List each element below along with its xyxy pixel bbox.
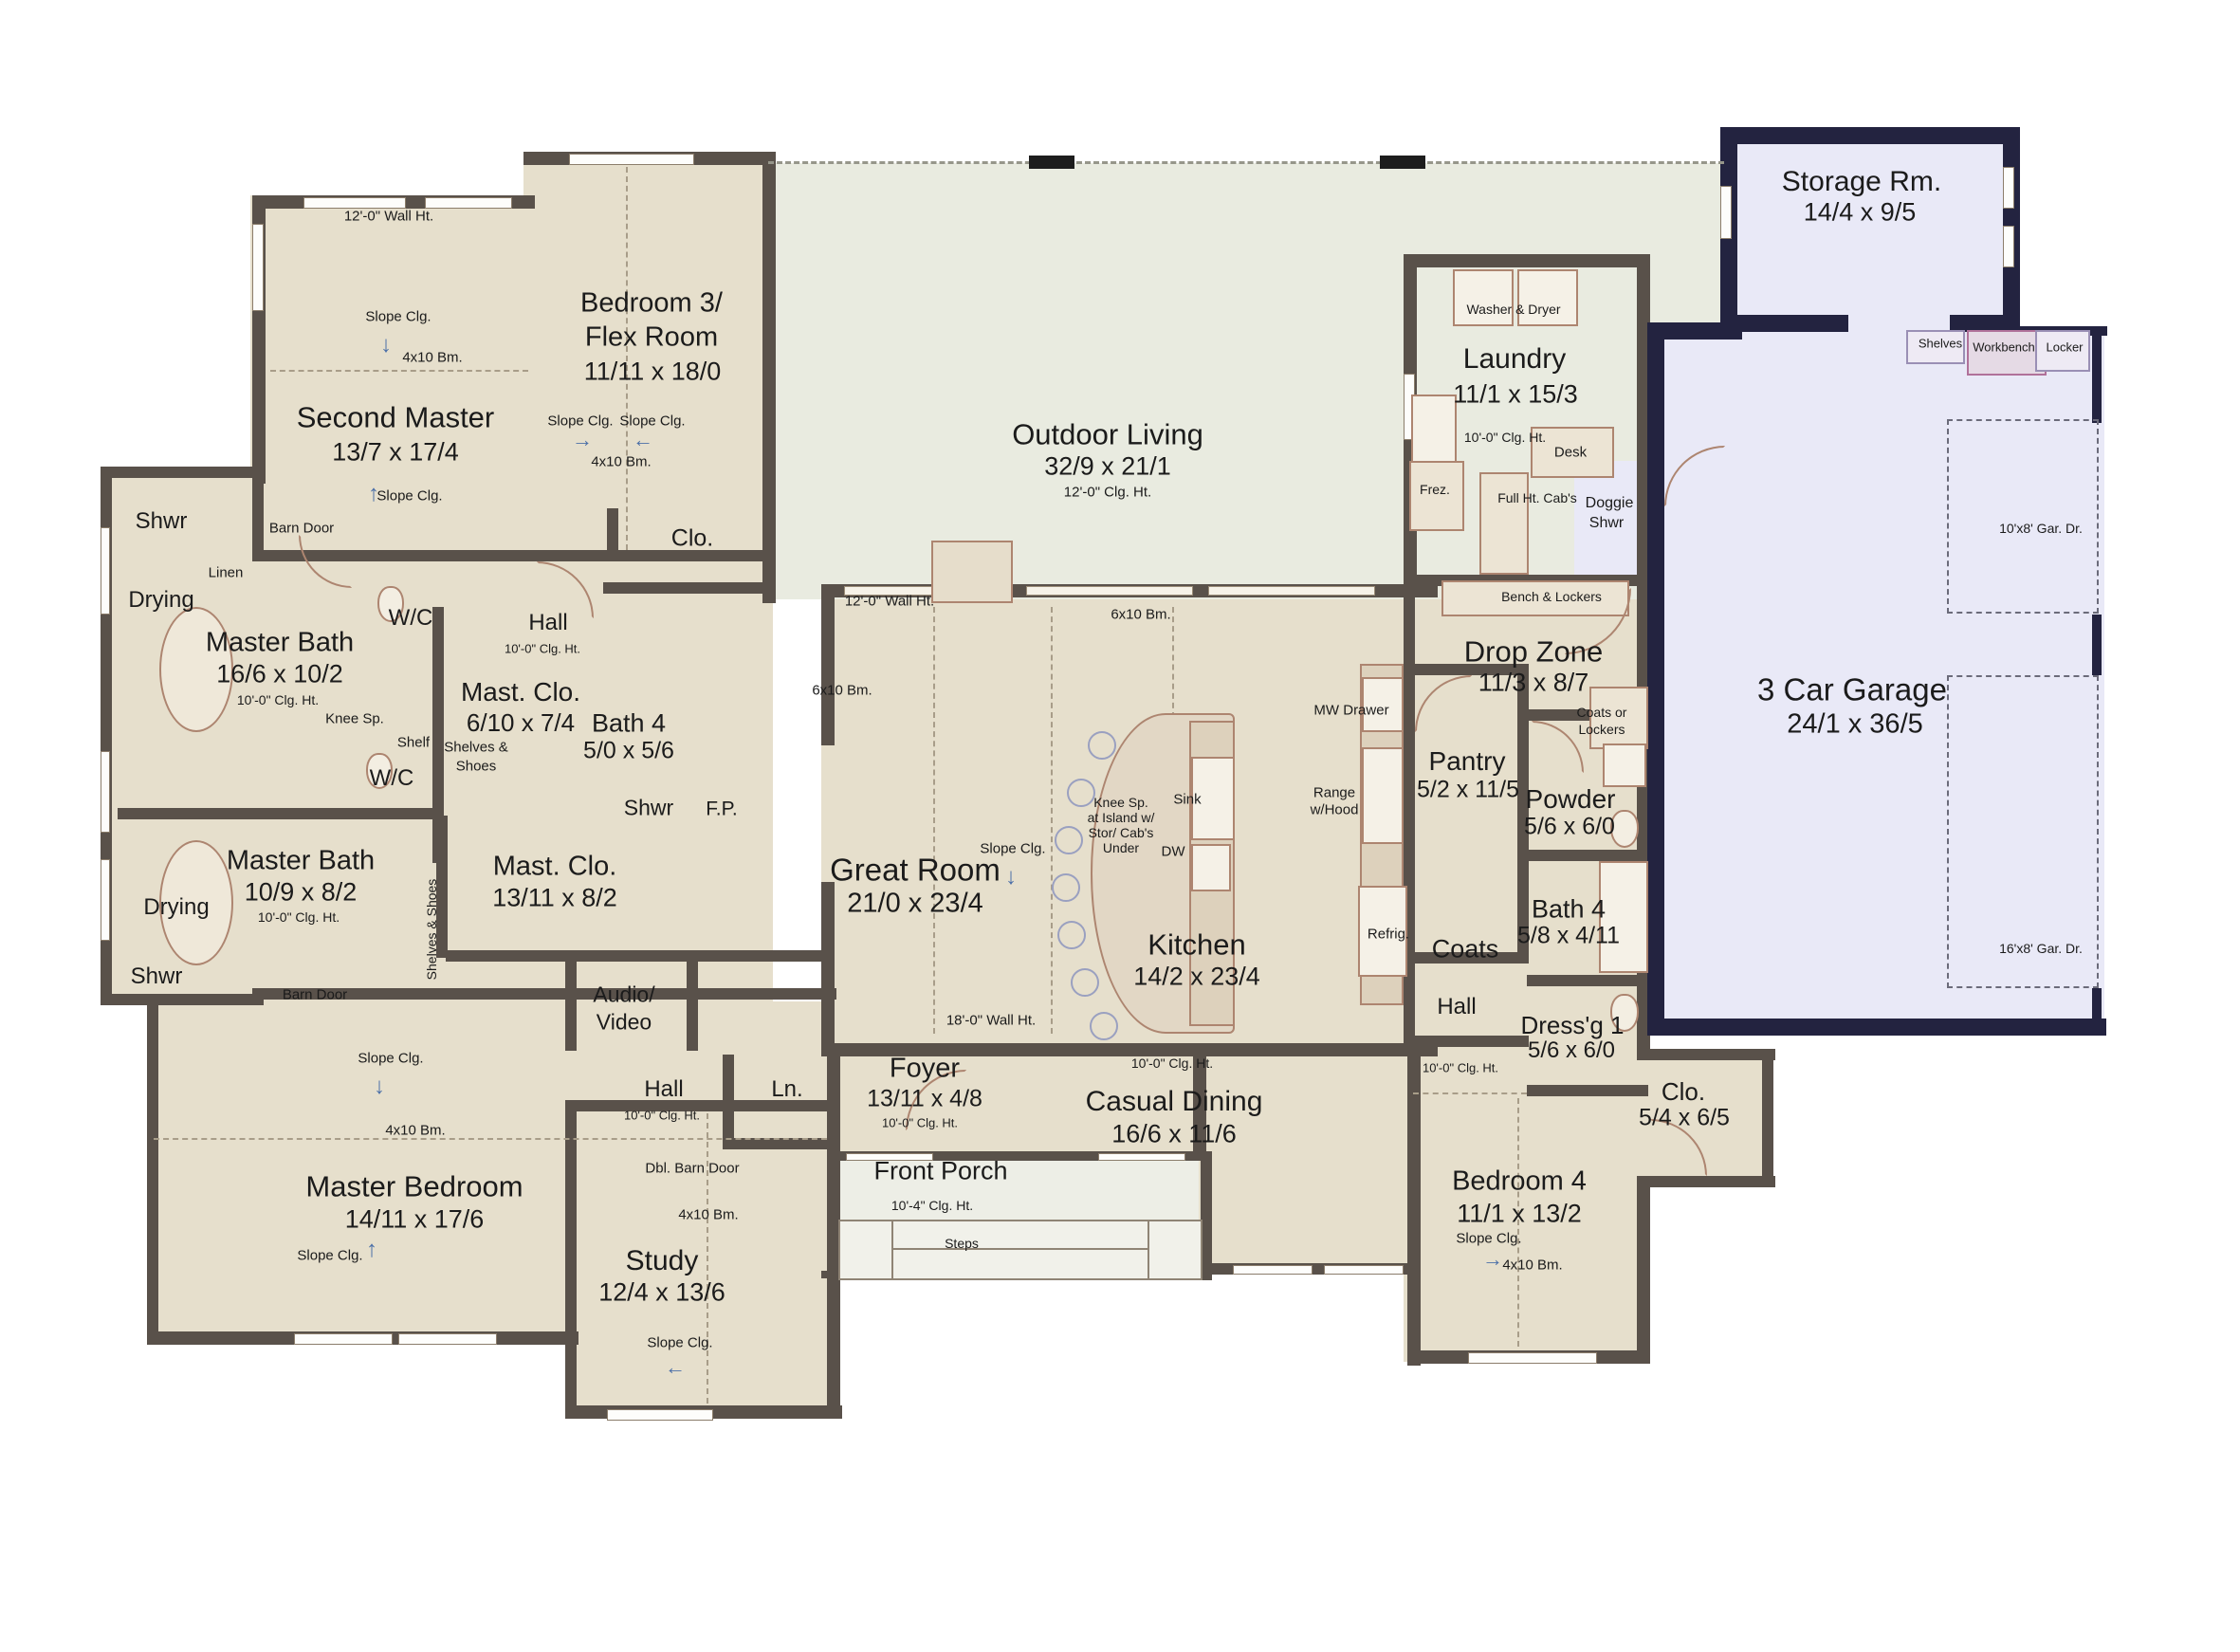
- label-locker: Locker: [2046, 341, 2083, 354]
- bar-stool: [1052, 873, 1080, 902]
- window: [303, 197, 406, 209]
- wall-segment: [1637, 1176, 1650, 1364]
- window: [1098, 1153, 1185, 1161]
- garage-wall-segment: [1647, 322, 1742, 340]
- label-master-bath-2-dim: 10/9 x 8/2: [245, 880, 358, 906]
- label-sm-slope-clg-top: Slope Clg.: [365, 310, 431, 324]
- label-drop-zone: Drop Zone: [1464, 637, 1603, 667]
- label-sm-wall-ht: 12'-0" Wall Ht.: [344, 210, 433, 224]
- label-kitchen-dim: 14/2 x 23/4: [1133, 964, 1260, 990]
- sliding-door: [1026, 586, 1193, 596]
- label-bench-lockers: Bench & Lockers: [1501, 590, 1602, 603]
- wall-segment: [106, 994, 264, 1005]
- label-foyer-clg: 10'-0" Clg. Ht.: [882, 1117, 958, 1129]
- steps-post: [1148, 1220, 1203, 1280]
- label-shelves-shoes-1b: Shoes: [456, 760, 497, 774]
- label-clo-4: Clo.: [1662, 1079, 1705, 1104]
- label-washer-dryer: Washer & Dryer: [1466, 303, 1560, 316]
- garage-wall-segment: [1647, 1019, 2106, 1036]
- label-b3-arrow-left: →: [572, 430, 593, 450]
- label-mw-drawer: MW Drawer: [1313, 704, 1388, 718]
- window: [101, 859, 110, 941]
- label-frez: Frez.: [1420, 483, 1450, 496]
- column-marker: [1380, 156, 1425, 169]
- label-wc-1: W/C: [389, 607, 433, 630]
- label-full-ht-cabs: Full Ht. Cab's: [1497, 491, 1577, 505]
- label-gr-beam-1: 6x10 Bm.: [812, 684, 872, 698]
- room-storage: [1728, 133, 2018, 330]
- label-foyer-dim: 13/11 x 4/8: [867, 1088, 982, 1111]
- label-great-room-dim: 21/0 x 23/4: [847, 890, 983, 918]
- label-bedroom3-name-2: Flex Room: [585, 324, 718, 352]
- label-gr-beam-2: 6x10 Bm.: [1111, 608, 1170, 622]
- label-bedroom3-dim: 11/11 x 18/0: [584, 359, 722, 385]
- label-barn-door-1: Barn Door: [269, 522, 334, 536]
- label-gr-wall-ht: 12'-0" Wall Ht.: [845, 595, 934, 609]
- label-laundry-clg: 10'-0" Clg. Ht.: [1464, 431, 1546, 444]
- label-sm-beam: 4x10 Bm.: [402, 351, 462, 365]
- label-outdoor-living-dim: 32/9 x 21/1: [1044, 454, 1171, 480]
- full-height-cabinets: [1479, 472, 1529, 575]
- beam-dashed-line: [270, 370, 528, 374]
- label-garage-dim: 24/1 x 36/5: [1787, 711, 1923, 739]
- label-second-master-dim: 13/7 x 17/4: [332, 440, 459, 466]
- wall-segment: [106, 467, 264, 478]
- label-mast-clo-2: Mast. Clo.: [493, 854, 617, 881]
- window: [2003, 226, 2014, 267]
- window: [1720, 186, 1732, 239]
- label-doggie-shwr-1: Doggie: [1586, 496, 1634, 511]
- label-coats-or-lockers-2: Lockers: [1578, 723, 1625, 736]
- window: [1324, 1265, 1404, 1275]
- label-dressg-1: Dress'g 1: [1520, 1013, 1624, 1037]
- label-b4-slope: Slope Clg.: [1456, 1232, 1521, 1246]
- wall-segment: [687, 956, 698, 1051]
- window: [425, 197, 512, 209]
- label-shelves-garage: Shelves: [1919, 338, 1962, 350]
- wall-segment: [821, 584, 835, 745]
- label-hall-right-clg: 10'-0" Clg. Ht.: [1423, 1062, 1498, 1074]
- label-master-bath-2: Master Bath: [227, 848, 375, 875]
- window: [569, 154, 694, 165]
- label-powder-dim: 5/6 x 6/0: [1524, 816, 1615, 839]
- window: [252, 224, 264, 311]
- bath4-tub: [1599, 861, 1648, 973]
- bar-stool: [1090, 1012, 1118, 1040]
- label-hall-left: Hall: [528, 612, 567, 634]
- label-mb-beam: 4x10 Bm.: [385, 1124, 445, 1138]
- label-desk: Desk: [1554, 446, 1587, 460]
- label-casual-dining: Casual Dining: [1086, 1088, 1263, 1116]
- roofline-dashed: [768, 161, 1724, 167]
- fireplace-box: [931, 541, 1013, 603]
- label-audio-video-2: Video: [597, 1012, 652, 1034]
- bar-stool: [1067, 779, 1095, 807]
- wall-segment: [1637, 1176, 1775, 1187]
- label-laundry: Laundry: [1463, 345, 1566, 374]
- label-storage-rm-dim: 14/4 x 9/5: [1804, 200, 1917, 226]
- label-doggie-shwr-2: Shwr: [1589, 516, 1624, 531]
- wall-segment: [762, 152, 776, 603]
- label-coats-or-lockers-1: Coats or: [1577, 706, 1627, 719]
- wall-segment: [603, 582, 774, 594]
- label-outdoor-living: Outdoor Living: [1012, 420, 1203, 450]
- label-linen: Linen: [209, 566, 244, 580]
- label-outdoor-living-clg: 12'-0" Clg. Ht.: [1064, 486, 1151, 500]
- label-mast-clo-1-dim: 6/10 x 7/4: [467, 710, 575, 735]
- beam-dashed-line: [1051, 607, 1055, 1034]
- wall-segment: [565, 1100, 577, 1413]
- label-mast-clo-1: Mast. Clo.: [461, 679, 580, 706]
- label-b3-closet: Clo.: [671, 527, 713, 551]
- window: [607, 1409, 713, 1421]
- beam-dashed-line: [707, 1113, 710, 1404]
- window: [398, 1333, 497, 1345]
- label-b3-slope-left: Slope Clg.: [547, 414, 613, 429]
- label-dressg-1-dim: 5/6 x 6/0: [1528, 1039, 1615, 1062]
- label-pantry-dim: 5/2 x 11/5: [1417, 779, 1519, 802]
- wall-segment: [565, 956, 577, 1051]
- label-mb-slope-bottom: Slope Clg.: [297, 1249, 362, 1263]
- room-casual-dining: [1199, 1049, 1426, 1269]
- label-second-master: Second Master: [297, 403, 495, 432]
- steps-line: [893, 1248, 1148, 1250]
- label-porch-clg: 10'-4" Clg. Ht.: [891, 1199, 973, 1212]
- garage-wall-segment: [1720, 127, 2020, 144]
- garage-wall-segment: [1647, 322, 1664, 1036]
- wall-segment: [1407, 1049, 1421, 1366]
- label-b3-arrow-right: ←: [633, 430, 653, 450]
- beam-dashed-line: [1413, 1092, 1527, 1096]
- label-b4-slope-arrow: →: [1482, 1249, 1503, 1270]
- label-casual-dining-dim: 16/6 x 11/6: [1111, 1122, 1237, 1147]
- label-mb-slope-arrow-bottom: ↑: [366, 1239, 377, 1261]
- label-knee-sp: Knee Sp.: [325, 712, 384, 726]
- label-wc-2: W/C: [370, 767, 414, 790]
- label-laundry-dim: 11/1 x 15/3: [1453, 382, 1578, 408]
- label-study-dim: 12/4 x 13/6: [598, 1280, 725, 1306]
- wall-segment: [607, 508, 618, 561]
- label-range-2: w/Hood: [1311, 803, 1359, 817]
- wall-segment: [252, 467, 264, 561]
- label-study-slope-arrow: ←: [665, 1357, 686, 1378]
- label-garage-door-1: 10'x8' Gar. Dr.: [1999, 522, 2083, 535]
- label-master-bath-2-clg: 10'-0" Clg. Ht.: [258, 910, 340, 924]
- beam-dashed-line: [933, 607, 937, 1034]
- label-dbl-barn-door: Dbl. Barn Door: [645, 1162, 739, 1176]
- wall-segment: [723, 1055, 734, 1146]
- label-mb-slope-arrow-top: ↓: [374, 1075, 385, 1098]
- label-bedroom3-name-1: Bedroom 3/: [580, 290, 723, 318]
- label-master-bath-1-dim: 16/6 x 10/2: [216, 662, 343, 688]
- dishwasher: [1191, 844, 1231, 891]
- label-bath4-right: Bath 4: [1532, 897, 1606, 923]
- label-shelves-shoes-2: Shelves & Shoes: [425, 879, 438, 981]
- label-workbench: Workbench: [1973, 341, 2035, 354]
- label-island-note-3: Stor/ Cab's: [1089, 826, 1154, 839]
- wall-segment: [1527, 975, 1648, 986]
- label-front-porch: Front Porch: [873, 1159, 1007, 1184]
- label-foyer: Foyer: [890, 1055, 960, 1083]
- label-mb-slope-top: Slope Clg.: [358, 1052, 423, 1066]
- label-sink: Sink: [1173, 793, 1201, 807]
- range-with-hood: [1362, 747, 1404, 844]
- label-b3-slope-right: Slope Clg.: [619, 414, 685, 429]
- label-bedroom-4: Bedroom 4: [1452, 1168, 1587, 1196]
- bar-stool: [1057, 921, 1086, 949]
- wall-segment: [147, 994, 158, 1343]
- bar-stool: [1055, 826, 1083, 854]
- label-storage-rm: Storage Rm.: [1782, 168, 1941, 196]
- label-garage: 3 Car Garage: [1757, 674, 1947, 706]
- label-island-note-2: at Island w/: [1088, 811, 1155, 824]
- window: [1468, 1352, 1597, 1364]
- label-study-slope: Slope Clg.: [647, 1336, 712, 1350]
- label-powder: Powder: [1526, 786, 1616, 813]
- floor-plan: 12'-0" Wall Ht.Slope Clg.↓4x10 Bm.Second…: [0, 0, 2240, 1652]
- label-b4-beam: 4x10 Bm.: [1502, 1258, 1562, 1273]
- label-steps: Steps: [945, 1237, 979, 1250]
- label-clo-4-dim: 5/4 x 6/5: [1639, 1107, 1730, 1130]
- powder-sink: [1603, 743, 1646, 787]
- wall-segment: [118, 808, 440, 819]
- beam-dashed-line: [154, 1138, 827, 1142]
- label-bath4-right-dim: 5/8 x 4/11: [1517, 925, 1620, 948]
- label-mast-clo-2-dim: 13/11 x 8/2: [492, 886, 617, 911]
- washer: [1453, 269, 1514, 326]
- wall-segment: [1762, 1049, 1773, 1187]
- label-sm-slope-clg-bottom: Slope Clg.: [376, 489, 442, 504]
- label-hall-right: Hall: [1437, 996, 1476, 1019]
- label-bath4-left: Bath 4: [592, 711, 666, 737]
- wall-segment: [1637, 1049, 1775, 1060]
- label-kitchen: Kitchen: [1148, 930, 1245, 960]
- label-refrig: Refrig.: [1368, 927, 1409, 942]
- label-fireplace: F.P.: [706, 799, 737, 819]
- label-shwr-1: Shwr: [136, 510, 188, 533]
- garage-wall-segment: [2092, 615, 2102, 675]
- wall-segment: [1404, 582, 1415, 1056]
- label-bath4-left-dim: 5/0 x 5/6: [583, 740, 674, 763]
- label-audio-video-1: Audio/: [593, 984, 654, 1006]
- window: [101, 527, 110, 615]
- label-master-bedroom: Master Bedroom: [305, 1172, 523, 1202]
- wall-segment: [821, 882, 835, 1053]
- garage-wall-segment: [2092, 336, 2102, 423]
- bar-stool: [1088, 731, 1116, 760]
- label-drop-zone-dim: 11/3 x 8/7: [1478, 670, 1589, 696]
- column-marker: [1029, 156, 1074, 169]
- wall-segment: [1527, 850, 1648, 861]
- wall-segment: [1527, 1085, 1648, 1096]
- label-dining-clg: 10'-0" Clg. Ht.: [1131, 1056, 1213, 1070]
- bar-stool: [1071, 968, 1099, 997]
- label-shelf: Shelf: [397, 736, 430, 750]
- label-barn-door-2: Barn Door: [283, 988, 347, 1002]
- label-master-bedroom-dim: 14/11 x 17/6: [345, 1207, 485, 1233]
- label-coats: Coats: [1432, 937, 1499, 963]
- label-hall-left-clg: 10'-0" Clg. Ht.: [505, 643, 580, 655]
- label-bedroom-4-dim: 11/1 x 13/2: [1457, 1202, 1582, 1227]
- label-range-1: Range: [1313, 786, 1355, 800]
- label-gr-wall-ht-2: 18'-0" Wall Ht.: [946, 1014, 1036, 1028]
- label-master-bath-1: Master Bath: [206, 630, 354, 657]
- label-gr-slope-arrow: ↓: [1005, 866, 1017, 889]
- dryer: [1517, 269, 1578, 326]
- label-island-note-4: Under: [1103, 841, 1139, 854]
- label-shwr-bath4: Shwr: [624, 798, 673, 819]
- label-sm-slope-arrow-top: ↓: [380, 334, 392, 357]
- window: [294, 1333, 393, 1345]
- label-master-bath-1-clg: 10'-0" Clg. Ht.: [237, 693, 319, 707]
- label-great-room: Great Room: [830, 854, 1001, 886]
- wall-segment: [446, 950, 835, 962]
- window: [1233, 1265, 1313, 1275]
- label-hall-bottom-clg: 10'-0" Clg. Ht.: [624, 1110, 700, 1122]
- window: [101, 751, 110, 833]
- sliding-door: [1208, 586, 1375, 596]
- label-garage-door-2: 16'x8' Gar. Dr.: [1999, 942, 2083, 955]
- wall-segment: [1404, 1036, 1529, 1047]
- label-b3-beam: 4x10 Bm.: [591, 455, 651, 469]
- label-pantry: Pantry: [1429, 748, 1506, 775]
- steps-post: [838, 1220, 893, 1280]
- garage-door-outline: [1947, 419, 2099, 614]
- label-island-note-1: Knee Sp.: [1093, 796, 1148, 809]
- label-hall-bottom: Hall: [644, 1078, 683, 1101]
- label-dw: DW: [1162, 845, 1185, 859]
- wall-segment: [1404, 254, 1650, 267]
- window: [2003, 167, 2014, 209]
- label-study-beam: 4x10 Bm.: [678, 1208, 738, 1222]
- label-drying-1: Drying: [128, 589, 193, 612]
- label-shwr-2: Shwr: [131, 965, 183, 988]
- label-linen-2: Ln.: [771, 1078, 802, 1101]
- label-study: Study: [626, 1247, 699, 1276]
- label-drying-2: Drying: [143, 896, 209, 919]
- label-shelves-shoes-1a: Shelves &: [444, 741, 508, 755]
